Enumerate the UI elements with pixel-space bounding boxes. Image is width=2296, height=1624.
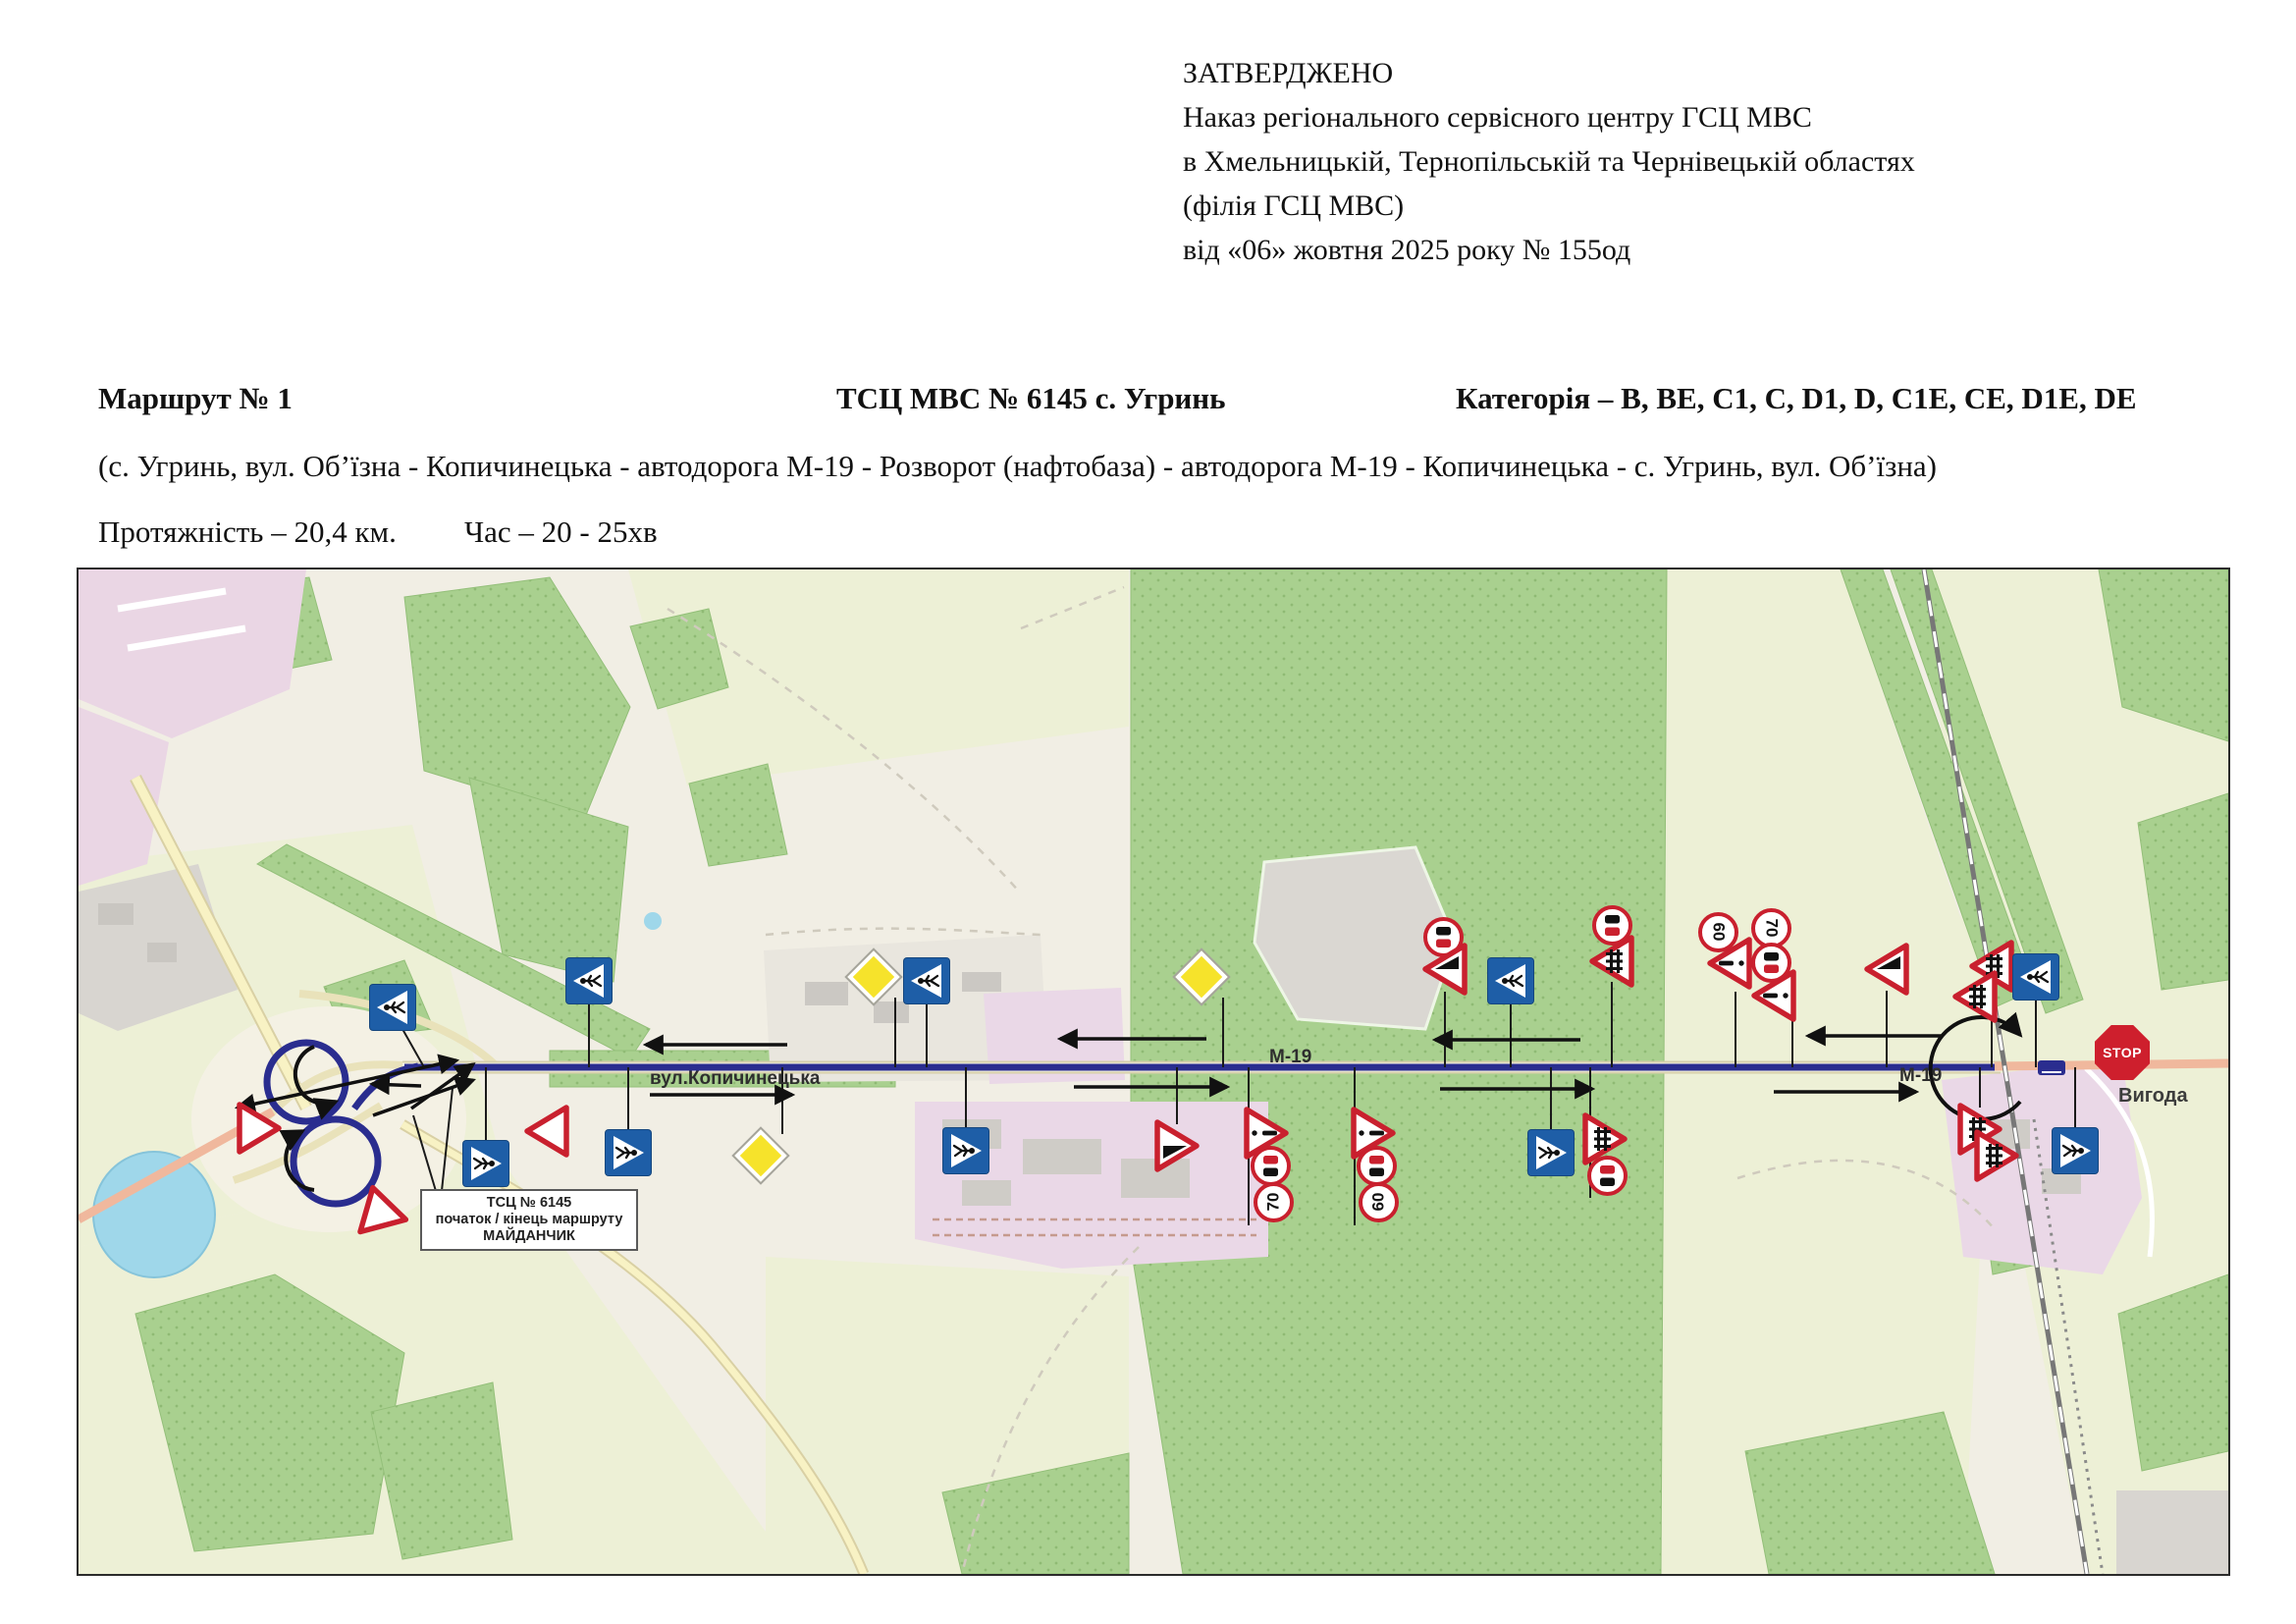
route-number: Маршрут № 1 [98, 381, 293, 416]
priority-road-sign [851, 954, 896, 1000]
no-overtaking-sign [1251, 1146, 1291, 1186]
steep-grade-sign [1860, 946, 1913, 993]
service-center-title: ТСЦ МВС № 6145 с. Угринь [836, 381, 1226, 416]
railway-crossing-sign [1970, 1132, 2023, 1179]
pedestrian-crossing-sign [2053, 1128, 2098, 1173]
steep-grade-sign [1150, 1122, 1203, 1169]
pedestrian-crossing-sign [566, 958, 612, 1003]
no-overtaking-sign [1357, 1146, 1397, 1186]
other-danger-sign [1747, 972, 1800, 1019]
no-overtaking-sign [1587, 1156, 1628, 1196]
callout-line: початок / кінець маршруту [424, 1212, 634, 1228]
railway-crossing-sign [1949, 973, 2002, 1020]
route-description: (с. Угринь, вул. Об’їзна - Копичинецька … [98, 449, 1937, 484]
route-time: Час – 20 - 25хв [464, 514, 658, 550]
priority-road-icon [1175, 950, 1228, 1003]
priority-road-sign [1179, 954, 1224, 1000]
pedestrian-crossing-sign [1528, 1130, 1574, 1175]
approval-block: ЗАТВЕРДЖЕНО Наказ регіонального сервісно… [1183, 51, 1915, 272]
speed-limit-sign: 60 [1359, 1182, 1399, 1222]
priority-road-icon [847, 950, 900, 1003]
callout-line: ТСЦ № 6145 [424, 1195, 634, 1212]
speed-limit-value: 70 [1761, 919, 1781, 938]
pedestrian-crossing-sign [606, 1130, 651, 1175]
pedestrian-crossing-sign [943, 1128, 988, 1173]
speed-limit-sign: 70 [1254, 1182, 1294, 1222]
speed-limit-value: 60 [1368, 1193, 1388, 1212]
approval-line: від «06» жовтня 2025 року № 155од [1183, 228, 1915, 272]
railway-crossing-sign [1585, 938, 1638, 985]
document-page: ЗАТВЕРДЖЕНО Наказ регіонального сервісно… [0, 0, 2296, 1624]
steep-grade-sign [1418, 946, 1471, 993]
pedestrian-crossing-sign [1488, 958, 1533, 1003]
approval-line: ЗАТВЕРДЖЕНО [1183, 51, 1915, 95]
route-length: Протяжність – 20,4 км. [98, 514, 397, 550]
pedestrian-crossing-sign [2013, 954, 2058, 1000]
categories: Категорія – B, BE, C1, C, D1, D, C1E, CE… [1456, 381, 2137, 416]
road-m19-label: М-19 [1269, 1047, 1311, 1068]
give-way-sign [233, 1105, 286, 1152]
approval-line: в Хмельницькій, Тернопільській та Чернів… [1183, 139, 1915, 184]
road-m19-label: М-19 [1899, 1065, 1942, 1087]
give-way-sign [520, 1108, 573, 1155]
pedestrian-crossing-sign [463, 1141, 508, 1186]
callout-line: МАЙДАНЧИК [424, 1228, 634, 1245]
pedestrian-crossing-sign [370, 985, 415, 1030]
street-label: вул.Копичинецька [650, 1068, 820, 1090]
give-way-sign [351, 1183, 404, 1230]
start-end-callout: ТСЦ № 6145 початок / кінець маршруту МАЙ… [420, 1189, 638, 1251]
approval-line: (філія ГСЦ МВС) [1183, 184, 1915, 228]
approval-line: Наказ регіонального сервісного центру ГС… [1183, 95, 1915, 139]
route-map: вул.Копичинецька М-19 М-19 Вигода ТСЦ № … [77, 568, 2230, 1576]
priority-road-sign [738, 1133, 783, 1178]
priority-road-icon [734, 1129, 787, 1182]
stop-text: STOP [2103, 1045, 2142, 1060]
pedestrian-crossing-sign [904, 958, 949, 1003]
village-label: Вигода [2118, 1085, 2188, 1108]
speed-limit-value: 70 [1263, 1193, 1283, 1212]
direction-arrow [372, 1084, 421, 1086]
